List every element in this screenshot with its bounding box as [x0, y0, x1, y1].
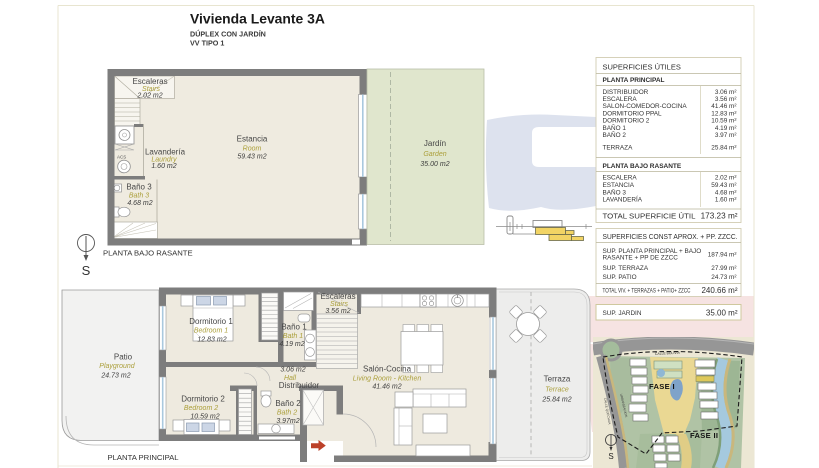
- svg-text:Bedroom 2: Bedroom 2: [184, 405, 218, 412]
- svg-text:TERRAZA: TERRAZA: [603, 145, 634, 152]
- svg-text:FASE I: FASE I: [649, 382, 675, 391]
- svg-text:41.46 m2: 41.46 m2: [372, 384, 401, 391]
- svg-text:3.06 m²: 3.06 m²: [715, 89, 737, 96]
- svg-text:DORMITORIO PPAL: DORMITORIO PPAL: [603, 110, 663, 117]
- svg-text:Dormitorio 1: Dormitorio 1: [189, 317, 233, 326]
- svg-text:ACS: ACS: [117, 155, 126, 160]
- svg-text:Baño 1: Baño 1: [281, 323, 307, 332]
- svg-text:PLANTA PRINCIPAL: PLANTA PRINCIPAL: [603, 77, 665, 84]
- svg-text:Room: Room: [243, 146, 262, 153]
- svg-text:SUP. TERRAZA: SUP. TERRAZA: [603, 265, 649, 272]
- svg-text:25.84 m²: 25.84 m²: [711, 145, 736, 152]
- svg-text:12.83 m2: 12.83 m2: [197, 337, 226, 344]
- svg-text:59.43 m2: 59.43 m2: [237, 154, 266, 161]
- svg-text:S: S: [608, 452, 613, 461]
- svg-text:Vivienda Levante 3A: Vivienda Levante 3A: [190, 11, 325, 27]
- svg-text:25.84 m2: 25.84 m2: [541, 397, 571, 404]
- svg-text:Patio: Patio: [114, 353, 133, 362]
- svg-text:BAÑO 1: BAÑO 1: [603, 123, 627, 132]
- svg-text:59.43 m²: 59.43 m²: [711, 182, 736, 189]
- svg-text:DÚPLEX CON JARDÍN: DÚPLEX CON JARDÍN: [190, 30, 266, 39]
- svg-text:240.66 m²: 240.66 m²: [701, 286, 737, 295]
- svg-text:Bedroom 1: Bedroom 1: [194, 328, 228, 335]
- svg-text:10.59 m²: 10.59 m²: [711, 118, 736, 125]
- svg-text:Baño 2: Baño 2: [275, 399, 301, 408]
- svg-text:3.06 m2: 3.06 m2: [280, 367, 305, 374]
- svg-text:3.56 m²: 3.56 m²: [715, 96, 737, 103]
- svg-text:Bath 1: Bath 1: [283, 333, 303, 340]
- svg-text:2.02 m²: 2.02 m²: [715, 175, 737, 182]
- svg-text:35.00 m2: 35.00 m2: [420, 161, 449, 168]
- svg-text:27.99 m²: 27.99 m²: [711, 265, 736, 272]
- svg-text:Salón-Cocina: Salón-Cocina: [363, 365, 412, 374]
- svg-text:Escaleras: Escaleras: [320, 292, 355, 301]
- svg-text:SUP. JARDIN: SUP. JARDIN: [603, 310, 642, 317]
- svg-text:24.73 m²: 24.73 m²: [711, 274, 736, 281]
- svg-text:SUP. PATIO: SUP. PATIO: [603, 274, 637, 281]
- svg-text:Distribuidor: Distribuidor: [279, 381, 320, 390]
- svg-text:PLANTA BAJO RASANTE: PLANTA BAJO RASANTE: [603, 163, 682, 170]
- svg-text:TOTAL SUPERFICIE ÚTIL: TOTAL SUPERFICIE ÚTIL: [603, 212, 696, 221]
- svg-text:FASE II: FASE II: [690, 431, 718, 440]
- svg-text:Baño 3: Baño 3: [126, 183, 152, 192]
- svg-text:4.19 m2: 4.19 m2: [279, 341, 304, 348]
- svg-text:Garden: Garden: [423, 151, 446, 158]
- svg-text:Lavandería: Lavandería: [145, 148, 186, 157]
- svg-text:24.73 m2: 24.73 m2: [100, 373, 130, 380]
- svg-text:PLANTA PRINCIPAL: PLANTA PRINCIPAL: [108, 453, 180, 462]
- svg-text:LAVANDERÍA: LAVANDERÍA: [603, 195, 643, 204]
- svg-text:Terraza: Terraza: [544, 375, 571, 384]
- svg-text:4.19 m²: 4.19 m²: [715, 125, 737, 132]
- svg-text:BAÑO 2: BAÑO 2: [603, 130, 627, 139]
- svg-text:Escaleras: Escaleras: [132, 77, 167, 86]
- svg-text:BAÑO 3: BAÑO 3: [603, 187, 627, 196]
- svg-text:187.94 m²: 187.94 m²: [708, 252, 737, 259]
- svg-text:S: S: [82, 263, 91, 278]
- svg-text:Bath 3: Bath 3: [129, 193, 149, 200]
- svg-text:173.23 m²: 173.23 m²: [701, 212, 738, 221]
- svg-text:ESTANCIA: ESTANCIA: [603, 182, 635, 189]
- svg-text:Estancia: Estancia: [237, 135, 268, 144]
- svg-text:Living Room - Kitchen: Living Room - Kitchen: [353, 376, 422, 383]
- svg-text:Playground: Playground: [99, 363, 136, 370]
- svg-text:DORMITORIO 2: DORMITORIO 2: [603, 118, 650, 125]
- svg-text:3.97 m²: 3.97 m²: [715, 132, 737, 139]
- svg-text:2.02 m2: 2.02 m2: [136, 93, 162, 100]
- svg-text:ESCALERA: ESCALERA: [603, 175, 638, 182]
- svg-text:SUPERFICIES CONST APROX. + PP.: SUPERFICIES CONST APROX. + PP. ZZCC.: [603, 232, 738, 241]
- svg-text:SALON-COMEDOR-COCINA: SALON-COMEDOR-COCINA: [603, 103, 688, 110]
- svg-text:12.83 m²: 12.83 m²: [711, 110, 736, 117]
- svg-text:Terrace: Terrace: [545, 387, 569, 394]
- svg-text:4.68 m2: 4.68 m2: [127, 200, 152, 207]
- svg-text:4.68 m²: 4.68 m²: [715, 189, 737, 196]
- svg-text:1.60 m²: 1.60 m²: [715, 197, 737, 204]
- svg-text:TOTAL VIV. + TERRAZAS + PATIO+: TOTAL VIV. + TERRAZAS + PATIO+ ZZCC: [603, 287, 691, 294]
- svg-text:PLANTA BAJO RASANTE: PLANTA BAJO RASANTE: [103, 249, 193, 258]
- svg-text:DISTRIBUIDOR: DISTRIBUIDOR: [603, 89, 649, 96]
- svg-text:Dormitorio 2: Dormitorio 2: [181, 395, 225, 404]
- svg-text:Stairs: Stairs: [330, 301, 348, 308]
- svg-text:RASANTE + PP DE ZZCC: RASANTE + PP DE ZZCC: [603, 255, 679, 262]
- svg-text:ESCALERA: ESCALERA: [603, 96, 638, 103]
- svg-text:41.46 m²: 41.46 m²: [711, 103, 736, 110]
- svg-text:Bath 2: Bath 2: [277, 410, 297, 417]
- svg-text:1.60 m2: 1.60 m2: [151, 163, 176, 170]
- svg-text:SUPERFICIES ÚTILES: SUPERFICIES ÚTILES: [603, 63, 681, 72]
- svg-text:Jardín: Jardín: [424, 139, 446, 148]
- svg-text:VV TIPO 1: VV TIPO 1: [190, 39, 224, 48]
- svg-text:35.00 m²: 35.00 m²: [706, 309, 738, 318]
